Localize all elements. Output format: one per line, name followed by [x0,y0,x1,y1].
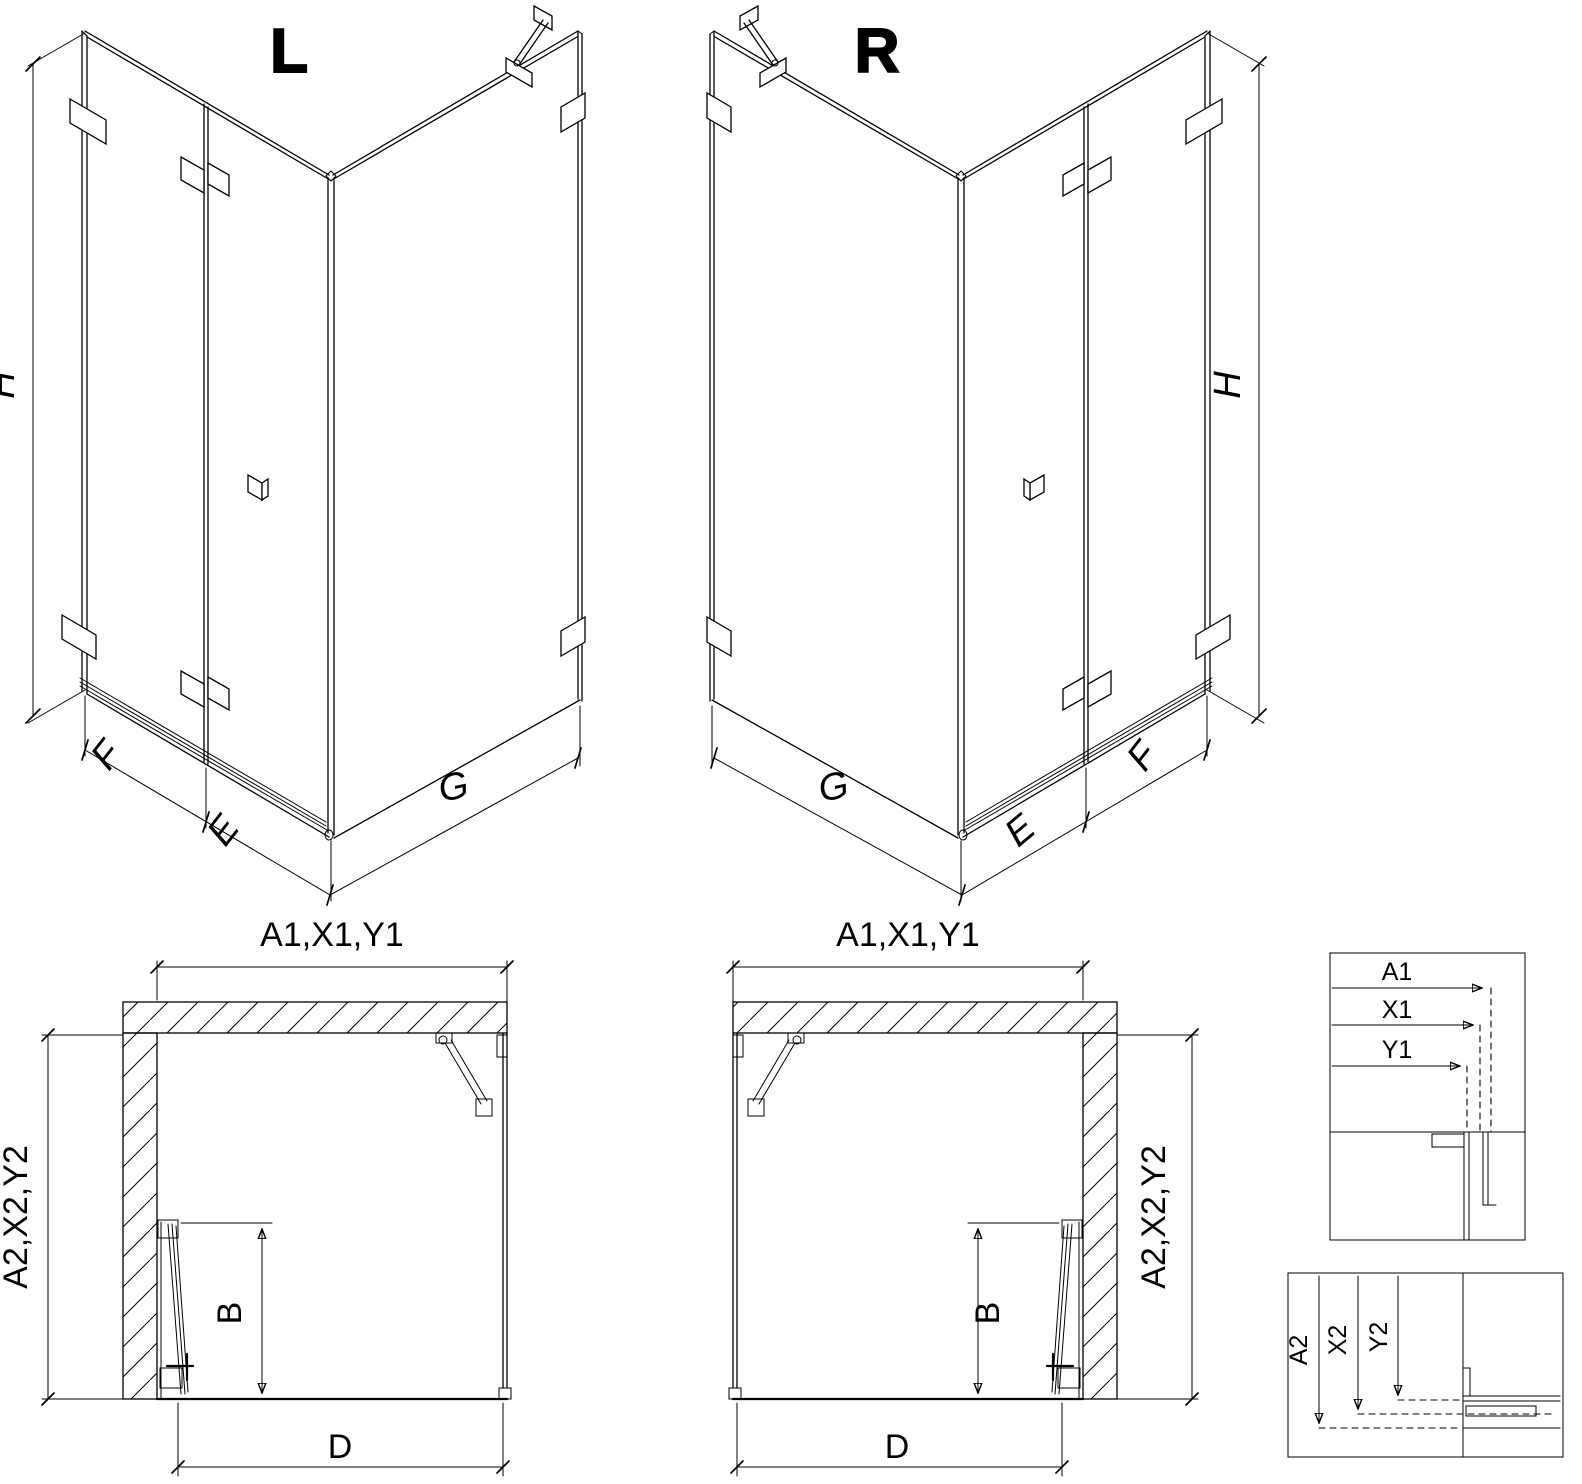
dim-label-a2-detail: A2 [1285,1335,1313,1366]
dim-label-b-right-plan: B [969,1302,1007,1325]
plan-view-right: A1,X1,Y1 A2,X2,Y2 B D [727,916,1198,1476]
plan-view-left: A1,X1,Y1 A2,X2,Y2 B D [0,916,513,1476]
detail-depth-box: A2 X2 Y2 [1285,1273,1563,1457]
iso-view-left: L [0,6,585,905]
dim-label-a1-detail: A1 [1382,958,1413,986]
dim-label-e-left: E [199,807,248,853]
glass-panels-left [82,31,582,838]
dim-label-e-right: E [997,806,1044,855]
dim-label-g-left: G [435,764,473,811]
detail-depth-arrows [1319,1276,1555,1428]
door-hinges-left [181,157,229,710]
wall-brackets-left [62,93,585,659]
dim-label-y1-detail: Y1 [1382,1036,1413,1064]
dim-b-left-plan: B [181,1223,272,1393]
dim-b-right-plan: B [968,1223,1059,1393]
detail-width-box: A1 X1 Y1 [1330,953,1525,1240]
support-bar-right [740,6,786,87]
dim-a2-right-plan: A2,X2,Y2 [1117,1029,1198,1405]
technical-drawing: L [0,0,1582,1484]
dim-label-a1-left-plan: A1,X1,Y1 [260,916,404,954]
door-left-plan [158,1220,188,1398]
dim-label-a1-right-plan: A1,X1,Y1 [836,916,980,954]
dim-h-right: H [1207,33,1266,723]
door-hinges-right [1063,157,1111,710]
glass-right-plan [729,1033,1083,1399]
dim-h-left: H [0,33,85,723]
dim-label-a2-left-plan: A2,X2,Y2 [0,1145,35,1289]
detail-depth-border [1288,1273,1563,1457]
dim-label-y2-detail: Y2 [1365,1322,1393,1353]
door-right-plan [1052,1220,1082,1398]
variant-label-left: L [270,17,308,86]
door-handle-right [1024,475,1044,500]
glass-panels-right [710,31,1210,838]
dim-d-right-plan: D [731,1403,1068,1476]
dim-d-left-plan: D [172,1403,509,1476]
detail-depth-profile [1463,1273,1560,1457]
dim-label-d-right-plan: D [885,1428,910,1466]
dim-label-x2-detail: X2 [1324,1325,1352,1356]
support-bar-right-plan [748,1033,804,1116]
dim-label-h-left: H [0,371,23,399]
support-bar-left-plan [436,1033,492,1116]
wall-brackets-right [707,93,1230,659]
iso-view-right: R [707,6,1266,905]
glass-left-plan [157,1033,511,1399]
detail-width-border [1330,953,1525,1240]
dim-label-f-left: F [83,732,131,778]
dim-label-b-left-plan: B [211,1302,249,1325]
dim-label-g-right: G [815,764,853,811]
dim-label-d-left-plan: D [328,1428,353,1466]
dim-label-a2-right-plan: A2,X2,Y2 [1135,1145,1173,1289]
door-handle-left [248,475,268,500]
drawing-canvas: L [0,0,1582,1484]
dim-label-x1-detail: X1 [1382,996,1413,1024]
variant-label-right: R [855,17,900,86]
support-bar-left [506,6,552,87]
dim-label-h-right: H [1207,371,1249,399]
dim-a2-left-plan: A2,X2,Y2 [0,1029,123,1405]
detail-width-profile [1330,1132,1525,1240]
